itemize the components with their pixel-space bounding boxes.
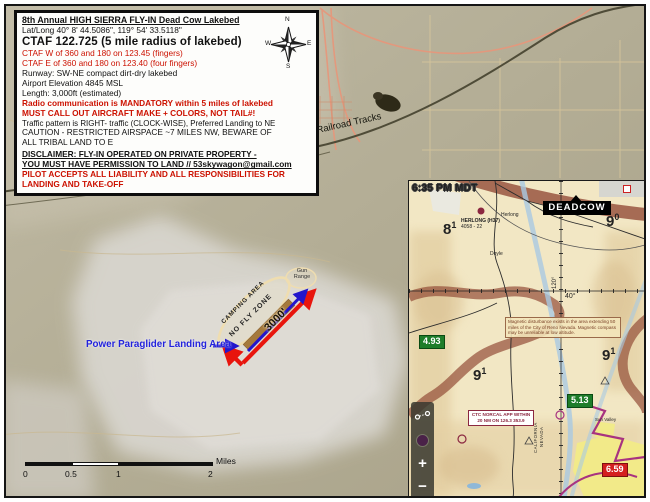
caution-info-2: ALL TRIBAL LAND TO E bbox=[22, 138, 311, 148]
compass-n: N bbox=[285, 16, 290, 23]
inset-time: 6:35 PM MDT bbox=[412, 183, 478, 194]
magnetic-disturbance-note: Magnetic disturbance exists in the area … bbox=[505, 317, 621, 338]
compass-s: S bbox=[286, 63, 290, 70]
scale-tick-0: 0 bbox=[23, 469, 28, 479]
herlong-airport-label: HERLONG (H37) 4058 - 22 bbox=[461, 219, 500, 230]
compass-w: W bbox=[265, 40, 271, 47]
longitude-label: 120° bbox=[552, 277, 558, 289]
mef-81: 81 bbox=[443, 221, 456, 237]
glide-box-513: 5.13 bbox=[567, 394, 593, 408]
glide-box-659: 6.59 bbox=[602, 463, 628, 477]
paraglider-landing-label: Power Paraglider Landing Area bbox=[86, 339, 231, 350]
liability-2: LANDING AND TAKE-OFF bbox=[22, 180, 311, 190]
zoom-out-button[interactable]: − bbox=[418, 479, 427, 494]
california-label: CALIFORNIA bbox=[533, 422, 538, 453]
zoom-in-button[interactable]: + bbox=[418, 456, 427, 471]
scale-bar: Miles 0 0.5 1 2 bbox=[20, 450, 260, 484]
mef-91-east: 91 bbox=[602, 347, 615, 363]
norcal-approach-note: CTC NORCAL APP WITHIN 20 NM ON 126.3 353… bbox=[468, 410, 534, 426]
sun-valley-label: Sun Valley bbox=[595, 417, 616, 422]
compass-e: E bbox=[307, 40, 311, 47]
scale-bar-segments bbox=[25, 462, 213, 466]
compass-rose: N E S W bbox=[265, 17, 313, 73]
doyle-town-label: Doyle bbox=[490, 252, 503, 258]
flyer-map: Railroad Tracks Gun Range CAMPING AREA N… bbox=[0, 0, 650, 502]
mef-90: 90 bbox=[606, 213, 619, 229]
latitude-label: 40° bbox=[565, 293, 576, 300]
route-button[interactable] bbox=[414, 408, 431, 426]
chart-note-icon bbox=[623, 185, 631, 193]
gun-range-label: Gun Range bbox=[288, 268, 316, 280]
sectional-chart-inset: 6:35 PM MDT 81 90 91 91 DEADCOW 4.93 5.1… bbox=[408, 180, 646, 498]
map-controls: + − bbox=[411, 402, 434, 498]
radio-warning-2: MUST CALL OUT AIRCRAFT MAKE + COLORS, NO… bbox=[22, 109, 311, 119]
scale-unit-label: Miles bbox=[216, 456, 236, 466]
info-box: 8th Annual HIGH SIERRA FLY-IN Dead Cow L… bbox=[14, 10, 319, 196]
scale-tick-2: 2 bbox=[208, 469, 213, 479]
mef-91-west: 91 bbox=[473, 367, 486, 383]
scale-tick-05: 0.5 bbox=[65, 469, 77, 479]
location-button[interactable] bbox=[416, 434, 429, 447]
glide-box-493: 4.93 bbox=[419, 335, 445, 349]
herlong-town-label: Herlong bbox=[501, 213, 519, 219]
nevada-label: NEVADA bbox=[539, 427, 544, 447]
deadcow-label: DEADCOW bbox=[543, 201, 611, 215]
scale-tick-1: 1 bbox=[116, 469, 121, 479]
